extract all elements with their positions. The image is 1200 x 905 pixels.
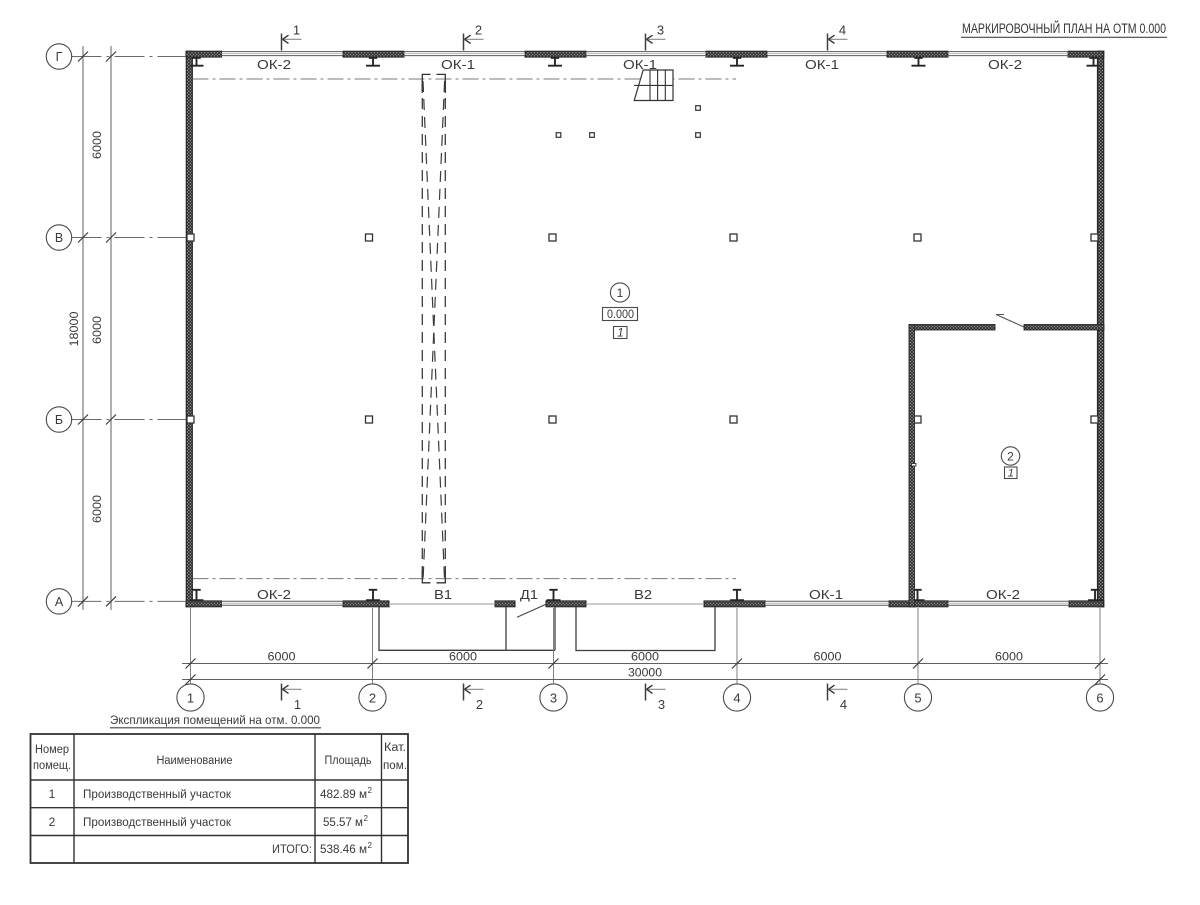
svg-text:6000: 6000 bbox=[90, 131, 104, 159]
svg-text:А: А bbox=[55, 595, 64, 609]
svg-text:4: 4 bbox=[839, 23, 846, 38]
svg-text:3: 3 bbox=[658, 697, 665, 712]
svg-text:30000: 30000 bbox=[628, 666, 662, 680]
svg-text:482.89 м: 482.89 м bbox=[320, 789, 367, 801]
svg-text:3: 3 bbox=[550, 691, 557, 706]
svg-text:В2: В2 bbox=[634, 588, 652, 602]
svg-text:6000: 6000 bbox=[449, 650, 477, 664]
svg-text:2: 2 bbox=[475, 23, 482, 38]
svg-text:МАРКИРОВОЧНЫЙ ПЛАН НА ОТМ 0.00: МАРКИРОВОЧНЫЙ ПЛАН НА ОТМ 0.000 bbox=[962, 21, 1166, 36]
svg-text:пом.: пом. bbox=[383, 760, 407, 772]
svg-text:6000: 6000 bbox=[90, 316, 104, 344]
svg-text:Кат.: Кат. bbox=[384, 742, 406, 754]
svg-text:6000: 6000 bbox=[995, 650, 1023, 664]
svg-text:18000: 18000 bbox=[67, 311, 81, 346]
svg-text:1: 1 bbox=[293, 23, 300, 38]
svg-text:2: 2 bbox=[369, 691, 376, 706]
svg-text:ОК-2: ОК-2 bbox=[257, 588, 291, 602]
svg-text:4: 4 bbox=[840, 697, 847, 712]
svg-text:55.57 м: 55.57 м bbox=[323, 817, 363, 829]
svg-text:Д1: Д1 bbox=[520, 588, 538, 602]
svg-text:6000: 6000 bbox=[90, 495, 104, 523]
svg-text:2: 2 bbox=[1007, 450, 1014, 464]
svg-text:ОК-1: ОК-1 bbox=[805, 58, 839, 72]
svg-text:Экспликация помещений на отм.: Экспликация помещений на отм. 0.000 bbox=[110, 713, 320, 727]
svg-text:1: 1 bbox=[187, 691, 194, 706]
svg-text:Площадь: Площадь bbox=[325, 755, 372, 767]
svg-text:4: 4 bbox=[733, 691, 740, 706]
svg-text:Производственный участок: Производственный участок bbox=[83, 789, 232, 801]
svg-text:В1: В1 bbox=[434, 588, 452, 602]
svg-text:2: 2 bbox=[368, 841, 373, 850]
svg-text:538.46 м: 538.46 м bbox=[320, 844, 367, 856]
svg-text:6000: 6000 bbox=[268, 650, 296, 664]
svg-text:ОК-2: ОК-2 bbox=[257, 58, 291, 72]
svg-text:2: 2 bbox=[368, 786, 373, 795]
svg-text:ОК-1: ОК-1 bbox=[809, 588, 843, 602]
svg-text:6000: 6000 bbox=[814, 650, 842, 664]
svg-text:Б: Б bbox=[55, 413, 63, 427]
svg-text:помещ.: помещ. bbox=[33, 760, 71, 772]
svg-text:6000: 6000 bbox=[631, 650, 659, 664]
svg-text:ОК-1: ОК-1 bbox=[441, 58, 475, 72]
svg-text:0.000: 0.000 bbox=[607, 309, 634, 321]
svg-text:1: 1 bbox=[617, 328, 623, 340]
svg-text:3: 3 bbox=[657, 23, 664, 38]
svg-text:1: 1 bbox=[617, 286, 624, 300]
svg-text:2: 2 bbox=[364, 814, 369, 823]
svg-text:2: 2 bbox=[476, 697, 483, 712]
svg-text:Наименование: Наименование bbox=[157, 755, 233, 767]
svg-text:ОК-2: ОК-2 bbox=[988, 58, 1022, 72]
svg-text:1: 1 bbox=[294, 697, 301, 712]
svg-text:6: 6 bbox=[1096, 691, 1103, 706]
svg-text:1: 1 bbox=[49, 787, 56, 801]
svg-text:Производственный участок: Производственный участок bbox=[83, 817, 232, 829]
svg-text:1: 1 bbox=[1008, 468, 1014, 480]
svg-text:ИТОГО:: ИТОГО: bbox=[272, 844, 312, 856]
svg-text:В: В bbox=[55, 231, 63, 245]
svg-text:2: 2 bbox=[49, 815, 56, 829]
svg-text:ОК-2: ОК-2 bbox=[986, 588, 1020, 602]
svg-text:Г: Г bbox=[56, 50, 63, 64]
svg-text:5: 5 bbox=[914, 691, 921, 706]
svg-text:Номер: Номер bbox=[35, 744, 69, 756]
